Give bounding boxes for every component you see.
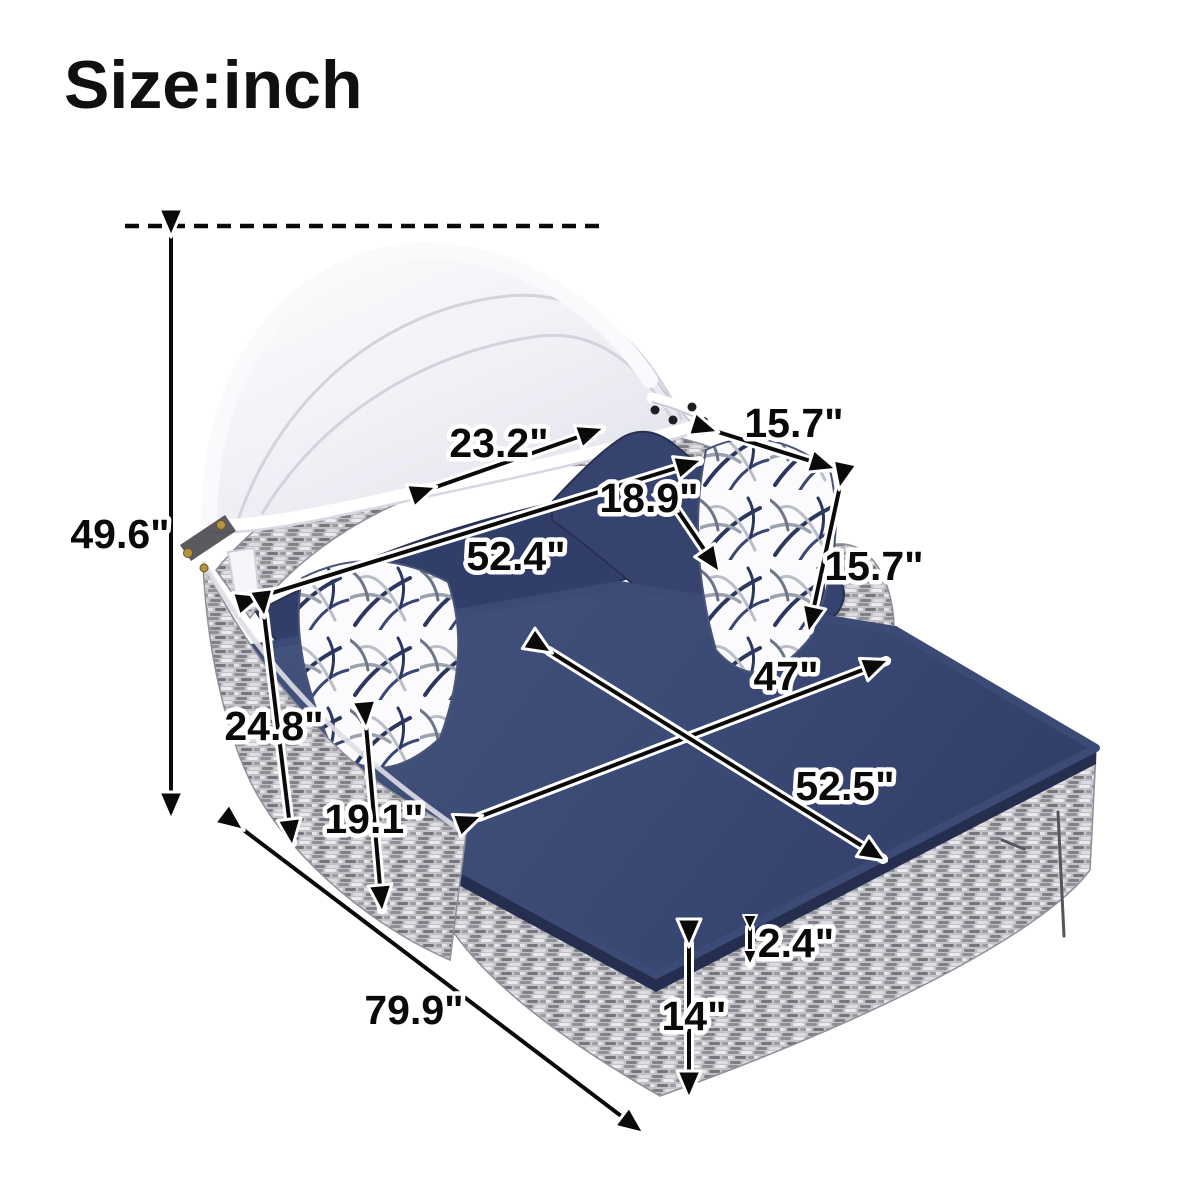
label-seat-width: 47" — [753, 653, 818, 699]
label-overall-length: 79.9" — [364, 987, 463, 1033]
label-pillow-diagonal: 18.9" — [599, 475, 698, 521]
label-seat-length: 52.5" — [795, 763, 894, 809]
label-backrest-length: 52.4" — [466, 533, 565, 579]
label-pillow-top-width: 15.7" — [744, 400, 843, 446]
label-canopy-back-width: 23.2" — [449, 420, 548, 466]
size-diagram-canvas: Size:inch — [0, 0, 1200, 1200]
product-size-diagram: Size:inch — [0, 0, 1200, 1200]
label-side-panel-height: 19.1" — [324, 796, 423, 842]
label-base-height: 14" — [661, 993, 726, 1039]
daybed-illustration — [180, 246, 1096, 1096]
label-pillow-side-height: 15.7" — [824, 543, 923, 589]
label-cushion-thickness: 2.4" — [758, 920, 834, 966]
label-overall-height: 49.6" — [70, 511, 169, 557]
page-title: Size:inch — [64, 47, 363, 123]
canopy-strap — [228, 548, 260, 612]
label-arm-height: 24.8" — [224, 703, 323, 749]
